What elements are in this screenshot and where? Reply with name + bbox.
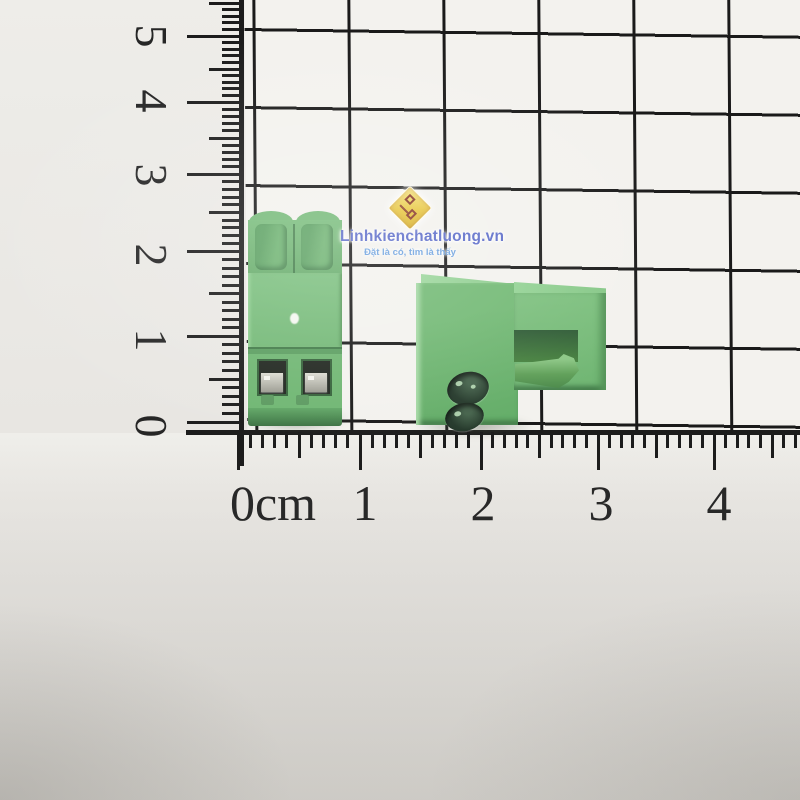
plug-housing	[416, 272, 518, 425]
terminal-block-side	[416, 272, 610, 432]
metal-glint	[455, 380, 463, 387]
housing-ledge	[248, 347, 342, 354]
housing-face	[248, 273, 342, 347]
watermark: Linhkienchatluong.vn Đặt là có, tìm là t…	[340, 188, 480, 258]
circuit-trace	[399, 204, 408, 213]
base-foot	[248, 408, 342, 426]
watermark-tagline-text: Đặt là có, tìm là thấy	[340, 247, 480, 258]
metal-contact	[305, 373, 327, 392]
clamp-window	[257, 359, 288, 396]
pin-shroud	[514, 286, 606, 390]
brand-logo-icon	[387, 185, 432, 230]
housing-front-face	[416, 283, 518, 425]
clamp-window	[301, 359, 332, 396]
photo-stage: 543210 0cm1234 Linhkienchatluong.vn Đặt …	[0, 0, 800, 800]
highlight-speck	[290, 313, 299, 324]
base-notch	[261, 395, 274, 405]
wire-funnel	[255, 224, 287, 270]
terminal-block-front	[248, 216, 342, 426]
circuit-trace	[404, 194, 415, 205]
metal-glint	[470, 384, 476, 389]
ruler-body-bottom	[0, 433, 800, 800]
metal-contact	[261, 373, 283, 392]
wire-entry-cap	[248, 220, 342, 273]
clamp-section	[248, 354, 342, 408]
mold-seam	[293, 224, 295, 274]
vertical-ruler-line	[239, 0, 244, 466]
base-notch	[296, 395, 309, 405]
wire-funnel	[301, 224, 333, 270]
metal-glint	[454, 411, 462, 417]
watermark-brand-text: Linhkienchatluong.vn	[340, 228, 480, 246]
